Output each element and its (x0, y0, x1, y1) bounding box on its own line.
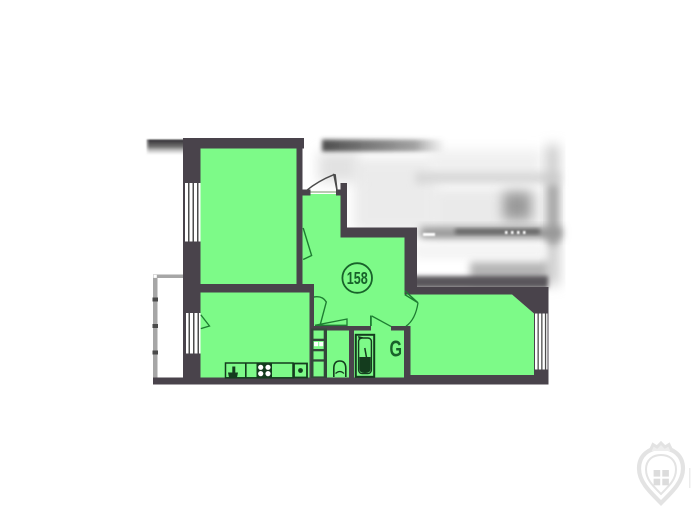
svg-text:158: 158 (347, 269, 368, 289)
svg-text:G: G (390, 337, 403, 362)
